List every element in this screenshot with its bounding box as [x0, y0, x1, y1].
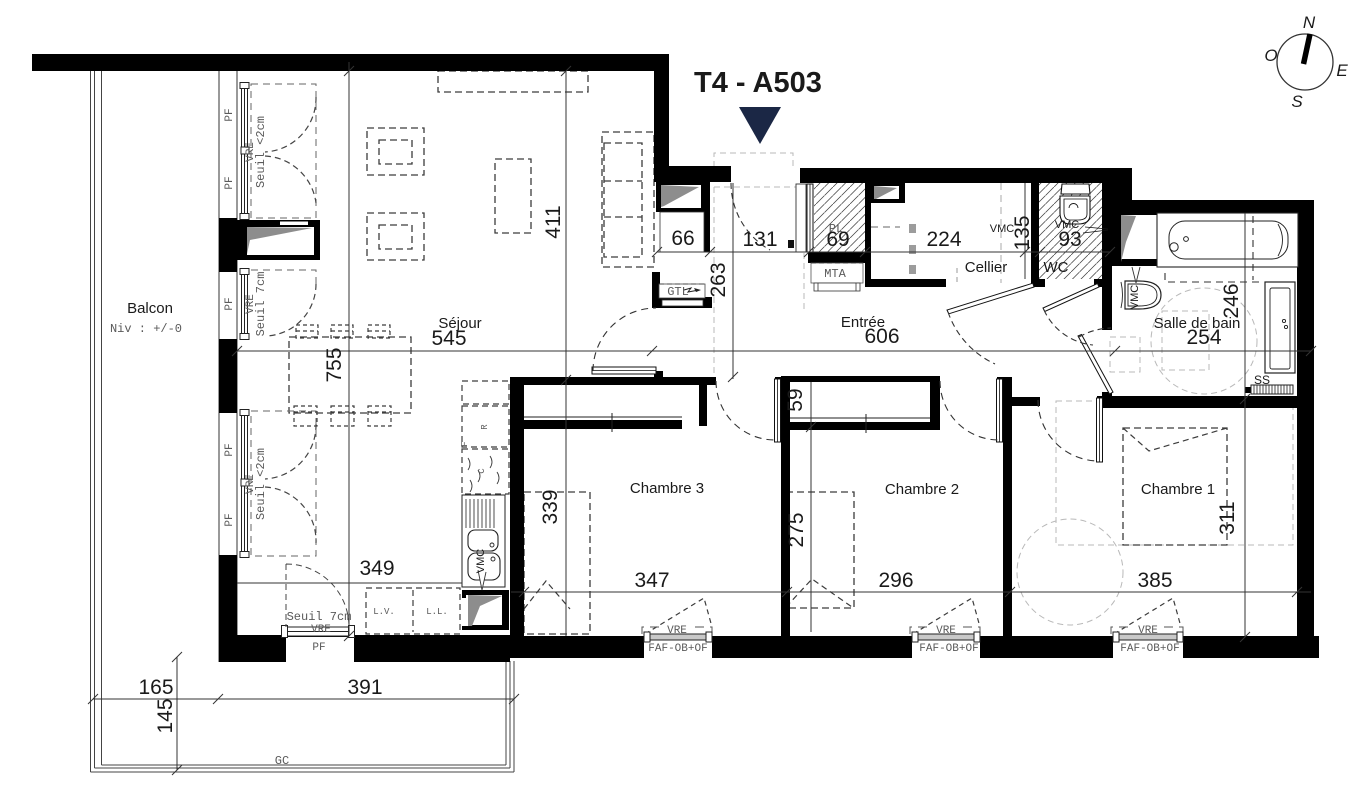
svg-text:Chambre 2: Chambre 2	[885, 481, 959, 498]
svg-text:PF: PF	[224, 176, 236, 189]
svg-text:T4 - A503: T4 - A503	[694, 67, 822, 99]
svg-text:135: 135	[1011, 215, 1034, 250]
svg-text:93: 93	[1058, 228, 1081, 251]
svg-text:GC: GC	[275, 754, 289, 768]
svg-text:PF: PF	[224, 297, 236, 310]
svg-text:GTL: GTL	[667, 285, 689, 299]
svg-text:Seuil <2cm: Seuil <2cm	[254, 116, 268, 188]
svg-text:246: 246	[1220, 283, 1243, 318]
svg-text:339: 339	[539, 489, 562, 524]
svg-text:165: 165	[138, 676, 173, 699]
svg-text:224: 224	[926, 228, 961, 251]
svg-text:145: 145	[154, 698, 177, 733]
svg-text:VRE: VRE	[667, 625, 687, 637]
svg-text:Cellier: Cellier	[965, 259, 1008, 276]
svg-text:VRE: VRE	[1138, 625, 1158, 637]
svg-text:Chambre 1: Chambre 1	[1141, 481, 1215, 498]
svg-text:WC: WC	[1044, 259, 1069, 276]
svg-text:FAF-OB+OF: FAF-OB+OF	[919, 643, 978, 655]
svg-text:S: S	[1291, 92, 1303, 111]
svg-text:411: 411	[542, 205, 565, 238]
svg-text:311: 311	[1216, 501, 1239, 534]
svg-text:MTA: MTA	[824, 267, 846, 281]
svg-text:F: F	[460, 441, 470, 446]
svg-text:275: 275	[785, 512, 808, 547]
svg-text:N: N	[1303, 13, 1316, 32]
svg-text:PF: PF	[224, 108, 236, 121]
svg-text:385: 385	[1137, 569, 1172, 592]
svg-text:347: 347	[634, 569, 669, 592]
svg-text:FAF-OB+OF: FAF-OB+OF	[648, 643, 707, 655]
svg-text:Balcon: Balcon	[127, 300, 173, 317]
svg-text:131: 131	[742, 228, 777, 251]
svg-text:L.V.: L.V.	[373, 607, 395, 617]
svg-text:606: 606	[864, 325, 899, 348]
svg-text:C: C	[477, 468, 487, 474]
svg-text:PF: PF	[224, 443, 236, 456]
svg-text:296: 296	[878, 569, 913, 592]
svg-text:L.L.: L.L.	[426, 607, 448, 617]
svg-text:391: 391	[347, 676, 382, 699]
svg-text:Niv : +/-0: Niv : +/-0	[110, 322, 182, 336]
svg-text:VRE: VRE	[936, 625, 956, 637]
svg-text:FAF-OB+OF: FAF-OB+OF	[1120, 643, 1179, 655]
svg-text:E: E	[1336, 61, 1348, 80]
svg-text:Seuil 7cm: Seuil 7cm	[254, 272, 268, 337]
svg-text:PF: PF	[224, 513, 236, 526]
svg-text:755: 755	[323, 347, 346, 382]
svg-text:O: O	[1264, 46, 1277, 65]
svg-text:349: 349	[359, 557, 394, 580]
svg-text:VMC: VMC	[1055, 219, 1080, 231]
svg-text:VMC: VMC	[990, 223, 1015, 235]
svg-text:59: 59	[784, 388, 807, 411]
svg-text:VMC: VMC	[475, 549, 487, 574]
svg-text:VMC: VMC	[1129, 285, 1141, 310]
svg-text:545: 545	[431, 327, 466, 350]
svg-text:263: 263	[707, 262, 730, 297]
svg-text:PF: PF	[312, 642, 325, 654]
svg-text:254: 254	[1186, 326, 1221, 349]
svg-text:R: R	[480, 424, 490, 430]
svg-text:PL: PL	[829, 222, 843, 236]
svg-text:66: 66	[671, 227, 694, 250]
svg-text:VRE: VRE	[311, 624, 331, 636]
svg-text:Seuil <2cm: Seuil <2cm	[254, 448, 268, 520]
svg-text:Chambre 3: Chambre 3	[630, 480, 704, 497]
svg-text:Seuil 7cm: Seuil 7cm	[287, 610, 352, 624]
svg-text:SS: SS	[1254, 373, 1270, 387]
